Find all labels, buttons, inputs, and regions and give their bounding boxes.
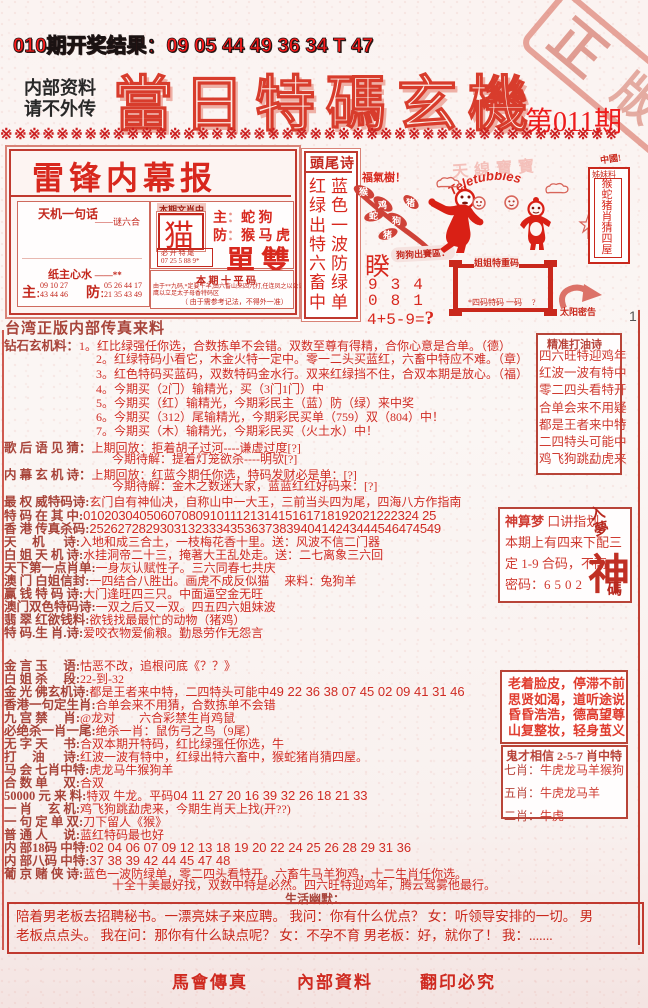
svg-text:猪: 猪 (405, 197, 415, 208)
svg-text:鸡: 鸡 (377, 199, 387, 210)
svg-text:蛇: 蛇 (369, 210, 378, 221)
svg-text:猪: 猪 (382, 229, 392, 240)
svg-text:狗: 狗 (392, 215, 401, 226)
svg-text:猴: 猴 (359, 186, 369, 197)
